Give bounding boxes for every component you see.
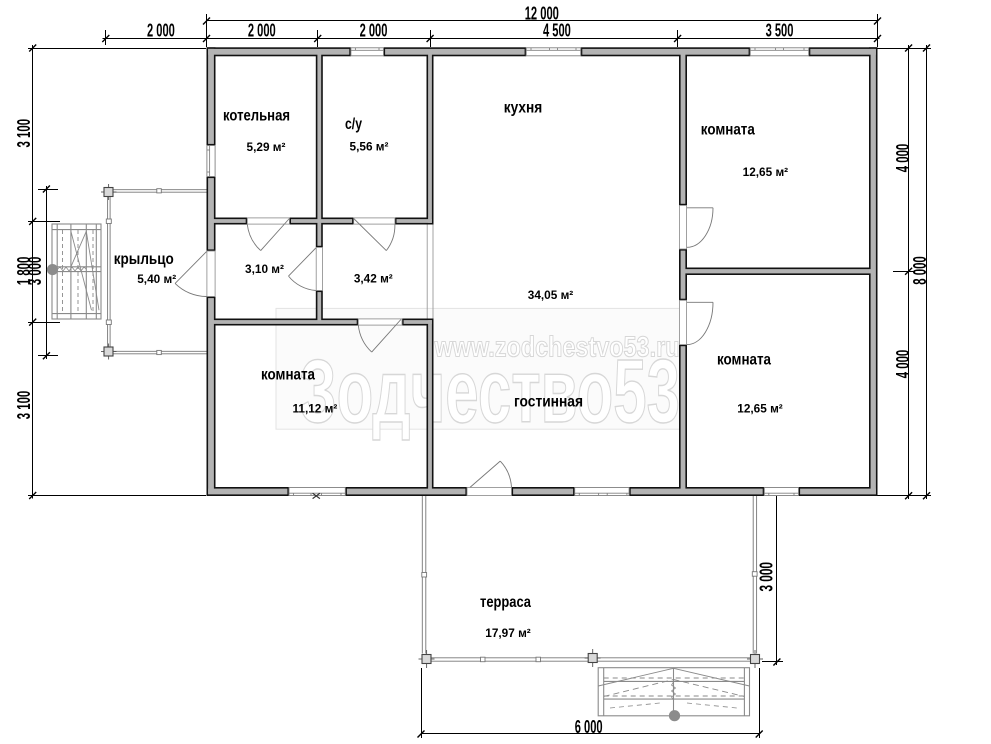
svg-text:комната: комната <box>261 367 315 384</box>
svg-text:12,65 м²: 12,65 м² <box>743 165 789 179</box>
svg-text:гостинная: гостинная <box>514 394 583 411</box>
svg-text:комната: комната <box>701 121 755 138</box>
svg-text:комната: комната <box>717 352 771 369</box>
svg-text:2 000: 2 000 <box>248 21 276 41</box>
svg-text:3 100: 3 100 <box>14 119 34 148</box>
svg-text:2 000: 2 000 <box>147 21 175 41</box>
svg-text:4 000: 4 000 <box>893 350 913 379</box>
svg-text:5,40 м²: 5,40 м² <box>137 272 176 286</box>
svg-text:Зодчество53: Зодчество53 <box>299 342 680 442</box>
svg-text:3 000: 3 000 <box>756 562 776 592</box>
svg-text:3 100: 3 100 <box>14 391 34 420</box>
svg-text:12,65 м²: 12,65 м² <box>737 402 783 416</box>
svg-text:котельная: котельная <box>223 107 290 124</box>
svg-text:крыльцо: крыльцо <box>114 251 174 268</box>
svg-text:терраса: терраса <box>480 594 531 611</box>
svg-text:2 000: 2 000 <box>360 21 388 41</box>
svg-text:4 500: 4 500 <box>543 21 571 41</box>
svg-text:5,29 м²: 5,29 м² <box>247 140 286 154</box>
svg-text:кухня: кухня <box>504 100 543 117</box>
svg-text:6 000: 6 000 <box>575 717 603 737</box>
svg-text:4 000: 4 000 <box>893 144 913 173</box>
svg-text:17,97 м²: 17,97 м² <box>485 626 531 640</box>
svg-text:с/у: с/у <box>345 116 362 133</box>
svg-text:11,12 м²: 11,12 м² <box>292 402 337 416</box>
svg-text:3,42 м²: 3,42 м² <box>354 271 393 285</box>
svg-text:5,56 м²: 5,56 м² <box>350 140 389 154</box>
svg-text:3 500: 3 500 <box>766 21 794 41</box>
svg-text:8 000: 8 000 <box>910 256 930 285</box>
svg-text:3 000: 3 000 <box>25 257 45 286</box>
svg-text:3,10 м²: 3,10 м² <box>245 262 284 276</box>
svg-text:34,05 м²: 34,05 м² <box>528 288 574 302</box>
